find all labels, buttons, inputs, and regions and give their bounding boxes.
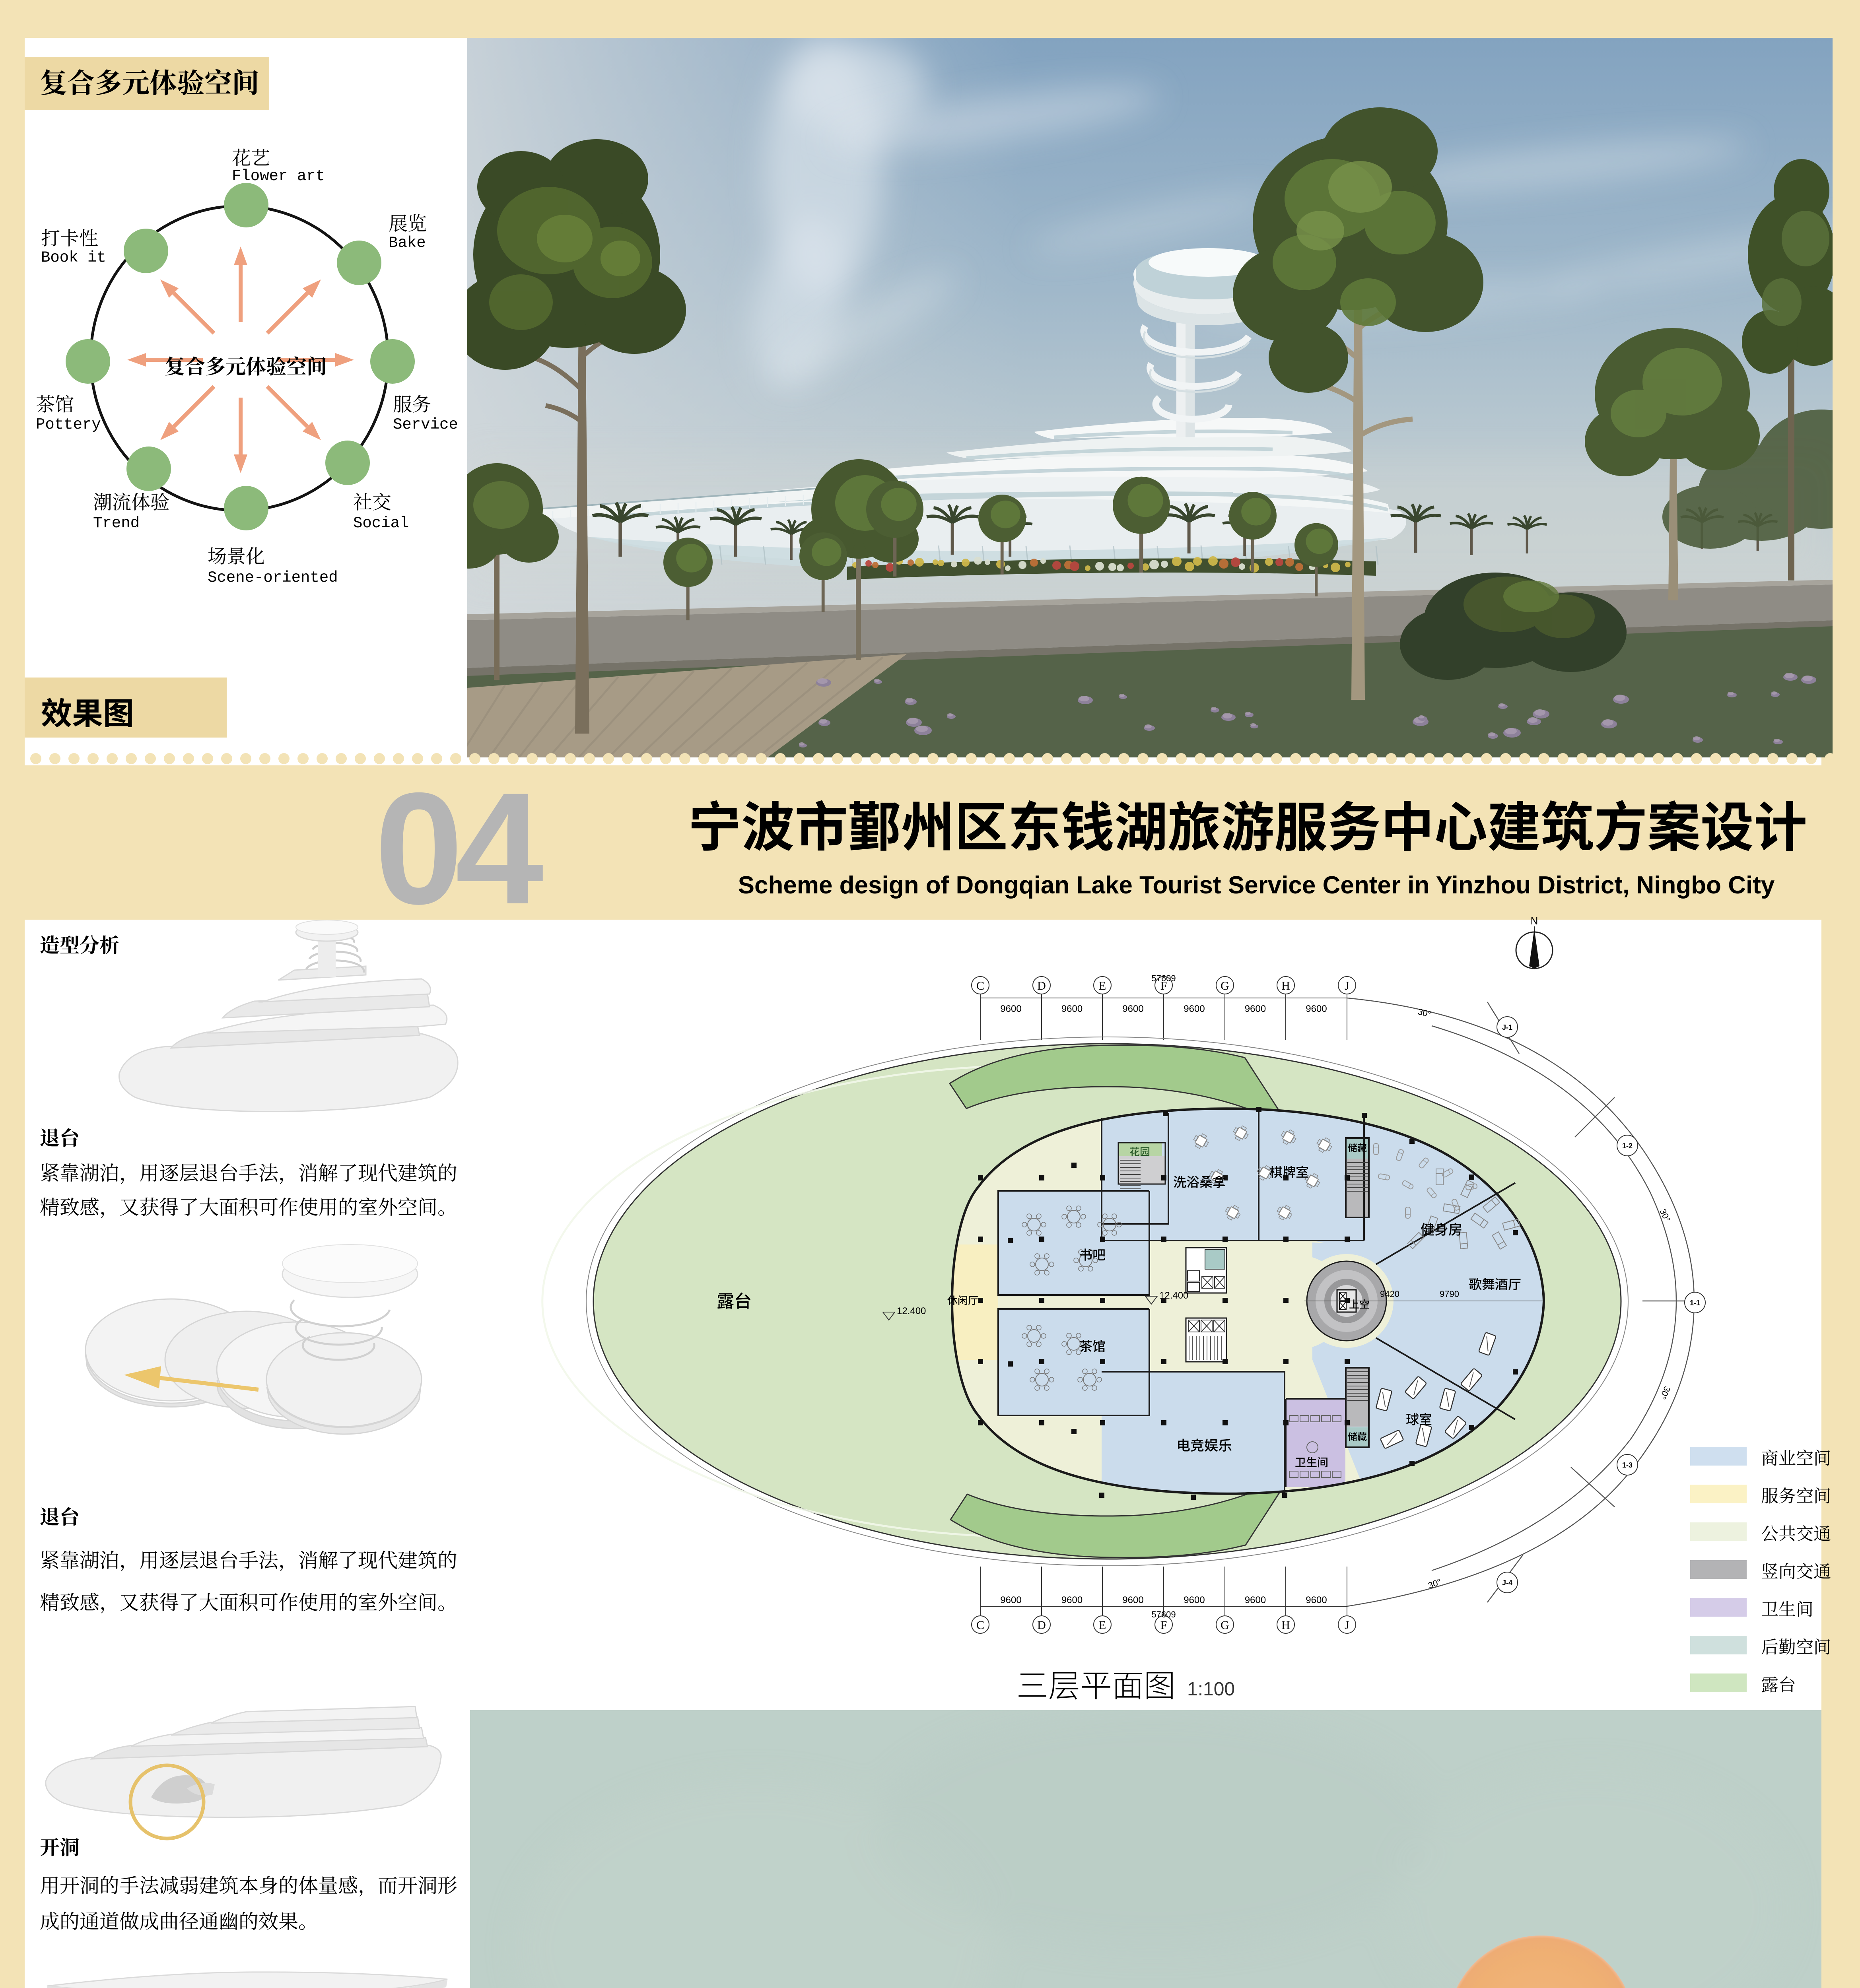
svg-text:E: E (1099, 979, 1106, 992)
svg-text:57609: 57609 (1151, 973, 1176, 983)
svg-text:9600: 9600 (1061, 1595, 1083, 1606)
svg-text:J-1: J-1 (1502, 1023, 1512, 1031)
svg-text:G: G (1221, 979, 1229, 992)
svg-text:H: H (1281, 1619, 1290, 1632)
svg-text:1-1: 1-1 (1690, 1299, 1700, 1307)
svg-text:1:100: 1:100 (1187, 1679, 1235, 1700)
svg-text:Pottery: Pottery (36, 416, 101, 433)
svg-text:9600: 9600 (1122, 1595, 1143, 1606)
svg-text:9600: 9600 (1061, 1004, 1083, 1014)
svg-text:9420: 9420 (1380, 1289, 1399, 1299)
svg-text:9600: 9600 (1245, 1595, 1266, 1606)
svg-text:C: C (976, 1619, 984, 1632)
svg-text:Bake: Bake (389, 234, 426, 252)
svg-text:H: H (1281, 979, 1290, 992)
svg-text:9600: 9600 (1122, 1004, 1143, 1014)
svg-text:9600: 9600 (1306, 1595, 1327, 1606)
svg-text:12.400: 12.400 (897, 1306, 926, 1316)
svg-text:9600: 9600 (1000, 1595, 1021, 1606)
svg-text:Service: Service (393, 416, 458, 433)
svg-text:57609: 57609 (1151, 1609, 1176, 1619)
svg-text:9600: 9600 (1184, 1595, 1205, 1606)
svg-text:F: F (1160, 1619, 1167, 1632)
svg-text:D: D (1037, 979, 1046, 992)
svg-text:G: G (1221, 1619, 1229, 1632)
svg-text:E: E (1099, 1619, 1106, 1632)
svg-text:Social: Social (353, 514, 409, 532)
svg-text:J-4: J-4 (1502, 1579, 1512, 1587)
svg-text:9600: 9600 (1306, 1004, 1327, 1014)
svg-text:C: C (976, 979, 984, 992)
svg-text:J: J (1345, 979, 1349, 992)
svg-text:04: 04 (375, 759, 544, 937)
svg-text:N: N (1531, 915, 1538, 927)
svg-text:Scheme design of Dongqian Lake: Scheme design of Dongqian Lake Tourist S… (738, 872, 1775, 899)
svg-text:1-2: 1-2 (1622, 1142, 1633, 1150)
svg-text:J: J (1345, 1619, 1349, 1632)
svg-text:D: D (1037, 1619, 1046, 1632)
svg-text:Flower art: Flower art (232, 167, 325, 185)
svg-text:9600: 9600 (1000, 1004, 1021, 1014)
svg-text:Scene-oriented: Scene-oriented (208, 569, 338, 586)
svg-text:1-3: 1-3 (1622, 1461, 1633, 1469)
svg-text:Trend: Trend (93, 514, 140, 532)
svg-text:9790: 9790 (1440, 1289, 1459, 1299)
svg-text:Book it: Book it (41, 249, 106, 266)
svg-text:9600: 9600 (1245, 1004, 1266, 1014)
svg-text:9600: 9600 (1184, 1004, 1205, 1014)
